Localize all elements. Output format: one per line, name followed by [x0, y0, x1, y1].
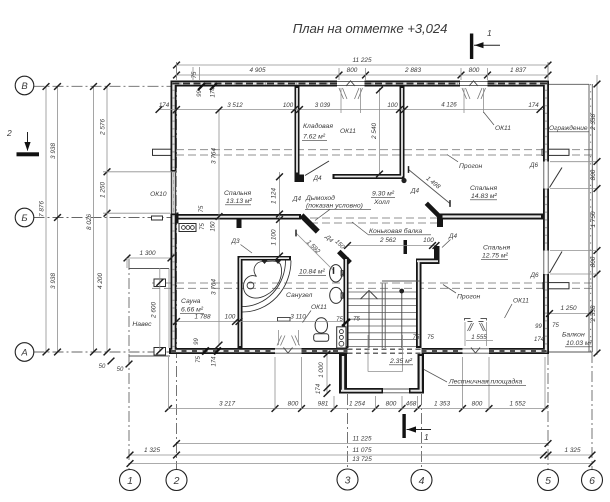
svg-text:ОК10: ОК10	[150, 191, 167, 198]
svg-text:1 250: 1 250	[561, 305, 577, 312]
svg-text:75: 75	[353, 317, 360, 323]
svg-text:4 200: 4 200	[97, 273, 104, 289]
svg-text:Дымоход: Дымоход	[305, 194, 335, 202]
svg-text:3 512: 3 512	[227, 102, 243, 109]
svg-text:2 338: 2 338	[590, 305, 597, 322]
svg-text:99: 99	[197, 90, 203, 97]
svg-text:А: А	[20, 348, 27, 359]
svg-text:1 124: 1 124	[271, 188, 278, 204]
svg-text:Д4: Д4	[448, 233, 457, 240]
svg-text:981: 981	[318, 401, 329, 408]
svg-text:Ограждение: Ограждение	[549, 124, 588, 132]
svg-text:11 075: 11 075	[352, 447, 372, 454]
svg-text:1 100: 1 100	[271, 229, 278, 245]
svg-text:Санузел: Санузел	[286, 292, 313, 299]
svg-text:100: 100	[423, 237, 434, 244]
svg-text:7 876: 7 876	[39, 201, 46, 217]
svg-text:174: 174	[159, 102, 170, 109]
svg-text:75: 75	[427, 335, 434, 341]
svg-text:Сауна: Сауна	[181, 298, 201, 305]
svg-text:3 764: 3 764	[211, 279, 218, 295]
svg-text:14.83 м²: 14.83 м²	[471, 193, 498, 200]
svg-text:Прогон: Прогон	[459, 163, 483, 170]
svg-text:9.30 м²: 9.30 м²	[372, 191, 395, 198]
svg-text:10.84 м²: 10.84 м²	[299, 269, 326, 276]
svg-text:1 353: 1 353	[434, 401, 450, 408]
svg-text:В: В	[21, 81, 28, 92]
svg-text:Балкон: Балкон	[562, 332, 585, 339]
svg-text:ОК11: ОК11	[340, 128, 356, 135]
svg-text:Прогон: Прогон	[457, 294, 481, 301]
svg-text:800: 800	[472, 401, 483, 408]
svg-text:11 225: 11 225	[352, 57, 372, 64]
svg-text:4 905: 4 905	[250, 67, 266, 74]
svg-text:Д6: Д6	[530, 272, 539, 279]
svg-text:10.03 м²: 10.03 м²	[566, 340, 593, 347]
svg-text:3 217: 3 217	[219, 401, 235, 408]
svg-text:6: 6	[589, 475, 595, 487]
svg-text:2: 2	[6, 128, 12, 138]
svg-text:50: 50	[99, 364, 106, 370]
svg-text:1 000: 1 000	[318, 362, 325, 378]
svg-text:План на отметке +3,024: План на отметке +3,024	[293, 21, 448, 36]
svg-text:2 883: 2 883	[404, 67, 421, 74]
svg-text:2.35 м²: 2.35 м²	[389, 358, 413, 365]
svg-text:ОК11: ОК11	[495, 125, 511, 132]
svg-text:99: 99	[535, 324, 542, 330]
svg-text:Навес: Навес	[132, 321, 152, 328]
svg-text:75: 75	[196, 356, 202, 363]
svg-text:75: 75	[552, 323, 559, 329]
svg-text:1: 1	[424, 432, 429, 442]
svg-text:5: 5	[545, 475, 551, 487]
svg-text:1 254: 1 254	[349, 401, 365, 408]
svg-text:100: 100	[387, 102, 398, 109]
svg-text:2 338: 2 338	[590, 114, 597, 131]
svg-text:800: 800	[469, 67, 480, 74]
svg-text:174: 174	[315, 383, 322, 394]
svg-text:Коньковая балка: Коньковая балка	[369, 227, 422, 235]
svg-text:12.75 м²: 12.75 м²	[482, 253, 509, 260]
svg-text:Спальня: Спальня	[470, 185, 498, 192]
svg-text:1 555: 1 555	[471, 334, 487, 341]
svg-text:174: 174	[528, 102, 539, 109]
svg-text:3 039: 3 039	[315, 102, 331, 109]
svg-text:Лестничная площадка: Лестничная площадка	[448, 378, 522, 386]
svg-text:Д4: Д4	[292, 196, 301, 203]
svg-text:Холл: Холл	[373, 199, 390, 206]
svg-text:174: 174	[211, 87, 217, 98]
svg-text:ОК11: ОК11	[311, 304, 327, 311]
svg-text:Д3: Д3	[231, 238, 240, 245]
svg-text:Д4: Д4	[410, 188, 419, 195]
svg-text:1 325: 1 325	[144, 447, 160, 454]
svg-text:3 110: 3 110	[290, 314, 306, 321]
svg-text:Спальня: Спальня	[224, 190, 252, 197]
svg-text:100: 100	[225, 314, 236, 321]
svg-text:75: 75	[199, 205, 205, 212]
svg-text:1 788: 1 788	[195, 314, 211, 321]
svg-text:2 562: 2 562	[379, 237, 396, 244]
svg-text:800: 800	[288, 401, 299, 408]
svg-text:4 126: 4 126	[441, 102, 457, 109]
svg-text:468: 468	[406, 401, 417, 408]
svg-text:2 600: 2 600	[151, 302, 158, 319]
svg-text:75: 75	[413, 335, 420, 341]
svg-text:800: 800	[347, 67, 358, 74]
svg-text:Б: Б	[21, 213, 27, 224]
svg-text:75: 75	[336, 317, 343, 323]
svg-text:1 250: 1 250	[100, 182, 107, 198]
svg-text:2 540: 2 540	[371, 123, 378, 140]
svg-text:8 026: 8 026	[86, 214, 93, 230]
svg-text:2: 2	[173, 475, 180, 487]
svg-text:1 325: 1 325	[565, 447, 581, 454]
svg-text:1 750: 1 750	[590, 211, 597, 227]
svg-text:99: 99	[194, 338, 200, 345]
svg-text:3: 3	[345, 475, 351, 487]
svg-text:4: 4	[419, 475, 425, 487]
svg-text:13.13 м²: 13.13 м²	[226, 198, 253, 205]
svg-text:2 576: 2 576	[100, 119, 107, 136]
svg-text:100: 100	[283, 102, 294, 109]
svg-text:800: 800	[386, 401, 397, 408]
svg-text:Кладовая: Кладовая	[303, 122, 333, 130]
svg-text:Д6: Д6	[529, 162, 538, 169]
svg-text:800: 800	[590, 169, 597, 180]
svg-text:13 725: 13 725	[352, 456, 372, 463]
svg-text:Д4: Д4	[313, 175, 322, 182]
svg-text:(показан условно): (показан условно)	[306, 203, 363, 210]
svg-text:150: 150	[211, 221, 217, 232]
svg-text:75: 75	[192, 71, 198, 78]
svg-text:50: 50	[117, 367, 124, 373]
svg-text:3 938: 3 938	[50, 273, 57, 289]
svg-text:1: 1	[487, 28, 492, 38]
svg-text:11 225: 11 225	[352, 436, 372, 443]
svg-text:174: 174	[212, 356, 218, 367]
svg-text:1: 1	[127, 475, 133, 487]
svg-text:1 300: 1 300	[140, 250, 156, 257]
svg-text:1 837: 1 837	[510, 67, 526, 74]
svg-text:174: 174	[534, 337, 545, 343]
svg-text:7.62 м²: 7.62 м²	[303, 134, 326, 141]
svg-text:75: 75	[200, 223, 206, 230]
svg-text:3 938: 3 938	[50, 143, 57, 159]
svg-text:ОК11: ОК11	[513, 298, 529, 305]
svg-text:800: 800	[590, 256, 597, 267]
svg-text:1 552: 1 552	[510, 401, 526, 408]
svg-text:Спальня: Спальня	[483, 245, 511, 252]
svg-text:3 764: 3 764	[211, 148, 218, 164]
svg-text:6.66 м²: 6.66 м²	[181, 307, 204, 314]
